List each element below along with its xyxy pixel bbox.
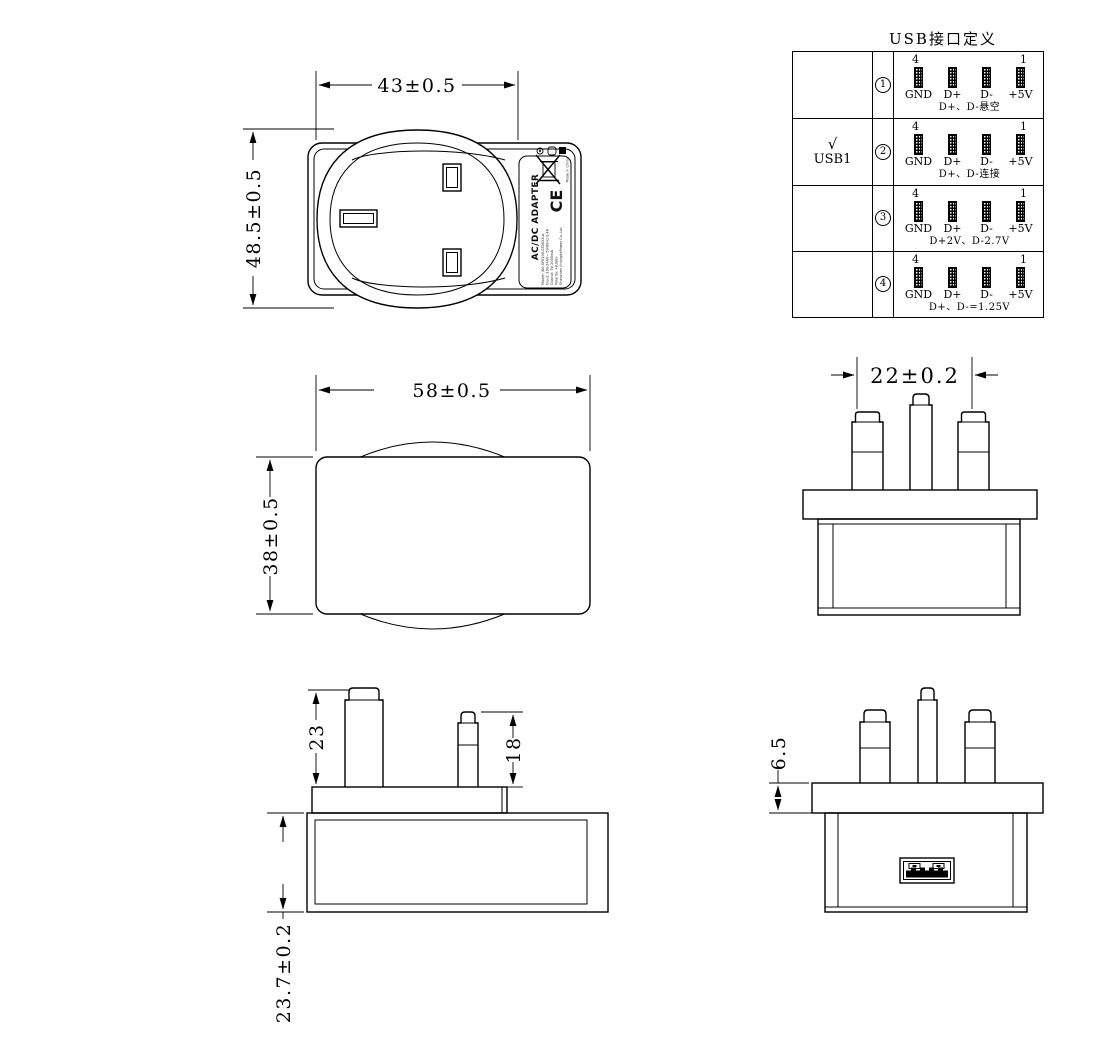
pin-definition-cell: 4 GND D+ D- 1 <box>894 252 1043 317</box>
oval-arc-bottom <box>358 613 507 629</box>
row-note: D+2V、D-2.7V <box>903 236 1036 247</box>
pin-column: 4 GND <box>903 54 934 101</box>
body-outline <box>316 457 590 614</box>
row-number-cell: 4 <box>873 252 894 317</box>
bag-icon <box>548 147 556 155</box>
pin-icon <box>948 201 957 222</box>
pin-column: D- <box>971 188 1002 235</box>
pin-row: 4 GND D+ D- 1 <box>903 254 1036 301</box>
right-pin <box>958 412 989 490</box>
product-name: AC/DC ADAPTER <box>531 174 541 260</box>
pin-label: GND <box>905 155 932 168</box>
pin-icon <box>914 67 923 88</box>
pin-number-1: 1 <box>1020 121 1027 134</box>
pin-column: D- <box>971 254 1002 301</box>
pin-label: +5V <box>1008 155 1032 168</box>
flange <box>812 783 1043 813</box>
right-pin <box>965 710 995 783</box>
pin-row: 4 GND D+ D- 1 <box>903 121 1036 168</box>
circled-number: 2 <box>875 144 891 160</box>
label-line-polarity: Polarity: +(USB)- <box>555 255 559 285</box>
pin-number-4: 4 <box>912 54 919 67</box>
row-note: D+、D-悬空 <box>903 102 1036 113</box>
row-number-cell: 1 <box>873 52 894 118</box>
pin-column: D- <box>971 54 1002 101</box>
option-cell <box>793 186 873 251</box>
pin-column: 1 +5V <box>1005 54 1036 101</box>
body-side <box>307 813 608 912</box>
top-view: 58±0.5 38±0.5 <box>256 375 590 629</box>
pin-label: +5V <box>1008 88 1032 101</box>
pin-label: D- <box>980 155 993 168</box>
left-pin <box>852 412 883 490</box>
pin-icon <box>982 267 991 288</box>
option-label-usb1: USB1 <box>814 153 852 167</box>
made-in-text: Made in China <box>566 158 570 183</box>
pin-slot-top <box>443 164 461 191</box>
pin-icon <box>1016 267 1025 288</box>
earth-pin <box>918 688 937 783</box>
pin-definition-cell: 4 GND D+ D- 1 <box>894 52 1043 118</box>
side-view-dimensions: 23 18 23.7±0.2 <box>267 690 525 1023</box>
adapter-drawing-page: CE AC/DC ADAPTER Model: JB0-SP0100-0500X… <box>0 0 1100 1044</box>
pin-spacing-dimension: 22±0.2 <box>831 357 998 409</box>
circled-number: 1 <box>875 77 891 93</box>
pin-row: 4 GND D+ D- 1 <box>903 54 1036 101</box>
pin-icon <box>1016 134 1025 155</box>
pin-slot-earth <box>340 210 377 227</box>
label-line-input: Input: 100-240V~ 50/60Hz 0.4A <box>546 228 550 285</box>
ce-mark: CE <box>547 190 566 213</box>
usb-contact-bar <box>906 871 948 878</box>
table-row: 1 4 GND D+ <box>793 52 1043 118</box>
pin-icon <box>948 67 957 88</box>
circled-number: 3 <box>875 210 891 226</box>
pin-number-4: 4 <box>912 121 919 134</box>
pin-icon <box>914 134 923 155</box>
option-cell: √ USB1 <box>793 119 873 184</box>
platform-side <box>312 787 507 813</box>
circled-number: 4 <box>875 276 891 292</box>
pin-number-4: 4 <box>912 188 919 201</box>
table-row: 3 4 GND D+ <box>793 185 1043 251</box>
table-row: √ USB1 2 4 GND D+ <box>793 118 1043 184</box>
pin-label: D+ <box>943 155 961 168</box>
certification-dot-icon-core <box>539 150 541 152</box>
pin-label: D+ <box>943 88 961 101</box>
pin-definition-cell: 4 GND D+ D- 1 <box>894 119 1043 184</box>
pin-column: 1 +5V <box>1005 121 1036 168</box>
pin-column: 4 GND <box>903 254 934 301</box>
oval-arc-top <box>358 442 507 458</box>
usb-table-title: USB接口定义 <box>817 28 1069 49</box>
pin-definition-cell: 4 GND D+ D- 1 <box>894 186 1043 251</box>
pin-label: GND <box>905 288 932 301</box>
label-line-model: Model: JB0-SP0100-0500XX-A <box>541 233 545 285</box>
usb-definition-table: 1 4 GND D+ <box>792 51 1044 318</box>
pin-number-4: 4 <box>912 254 919 267</box>
body-box <box>825 813 1027 912</box>
pin-column: 4 GND <box>903 188 934 235</box>
body-side-inner <box>315 820 587 904</box>
pin-label: D+ <box>943 222 961 235</box>
dim-flange-thickness: 6.5 <box>768 736 790 771</box>
usb-port <box>900 858 954 883</box>
label-line-company: Shenzhen JihongdePower Co.,Ltd <box>559 227 563 285</box>
left-pin <box>860 710 890 783</box>
pin-icon <box>914 267 923 288</box>
front-view: CE AC/DC ADAPTER Model: JB0-SP0100-0500X… <box>243 71 581 308</box>
pin-row: 4 GND D+ D- 1 <box>903 188 1036 235</box>
pin-column: D+ <box>937 254 968 301</box>
row-number-cell: 2 <box>873 119 894 184</box>
dim-front-height: 48.5±0.5 <box>243 168 265 268</box>
pin-icon <box>914 201 923 222</box>
selected-checkmark: √ <box>828 137 838 152</box>
pin-icon <box>948 134 957 155</box>
row-number-cell: 3 <box>873 186 894 251</box>
pin-number-1: 1 <box>1020 188 1027 201</box>
dim-power-pin-length: 18 <box>503 736 525 763</box>
pin-icon <box>982 67 991 88</box>
earth-pin <box>910 394 932 490</box>
pin-label: D- <box>980 222 993 235</box>
pin-label: GND <box>905 88 932 101</box>
pin-icon <box>982 201 991 222</box>
pin-icon <box>982 134 991 155</box>
pin-number-1: 1 <box>1020 54 1027 67</box>
pin-label: D- <box>980 288 993 301</box>
row-note: D+、D-连接 <box>903 169 1036 180</box>
pin-slot-bottom <box>443 249 461 276</box>
pin-number-1: 1 <box>1020 254 1027 267</box>
pin-column: 4 GND <box>903 121 934 168</box>
option-cell <box>793 52 873 118</box>
dim-earth-pin-length: 23 <box>306 723 328 750</box>
dim-top-height: 38±0.5 <box>260 496 282 575</box>
pin-column: D+ <box>937 54 968 101</box>
square-mark-icon <box>559 147 566 154</box>
product-label: CE AC/DC ADAPTER Model: JB0-SP0100-0500X… <box>519 147 571 288</box>
pin-icon <box>1016 201 1025 222</box>
pin-column: D+ <box>937 121 968 168</box>
pin-label: +5V <box>1008 222 1032 235</box>
dim-pin-spacing: 22±0.2 <box>870 364 960 388</box>
pin-label: GND <box>905 222 932 235</box>
label-line-output: Output: 5V 2000mA <box>550 250 554 285</box>
pin-column: D+ <box>937 188 968 235</box>
pin-face-view: 22±0.2 <box>803 357 1037 615</box>
flange <box>803 490 1037 519</box>
pin-icon <box>948 267 957 288</box>
earth-pin-side <box>345 688 383 787</box>
row-note: D+、D-=1.25V <box>903 302 1036 313</box>
pin-column: 1 +5V <box>1005 188 1036 235</box>
pin-icon <box>1016 67 1025 88</box>
pin-column: 1 +5V <box>1005 254 1036 301</box>
dim-top-width: 58±0.5 <box>412 380 491 402</box>
option-cell <box>793 252 873 317</box>
pin-label: D- <box>980 88 993 101</box>
body-box <box>818 519 1020 615</box>
dim-body-thickness: 23.7±0.2 <box>273 923 295 1023</box>
usb-face-view: 6.5 <box>768 688 1043 912</box>
pin-column: D- <box>971 121 1002 168</box>
table-row: 4 4 GND D+ <box>793 251 1043 317</box>
pin-label: D+ <box>943 288 961 301</box>
dim-front-width: 43±0.5 <box>377 75 456 97</box>
side-view: 23 18 23.7±0.2 <box>267 688 608 1023</box>
pin-label: +5V <box>1008 288 1032 301</box>
